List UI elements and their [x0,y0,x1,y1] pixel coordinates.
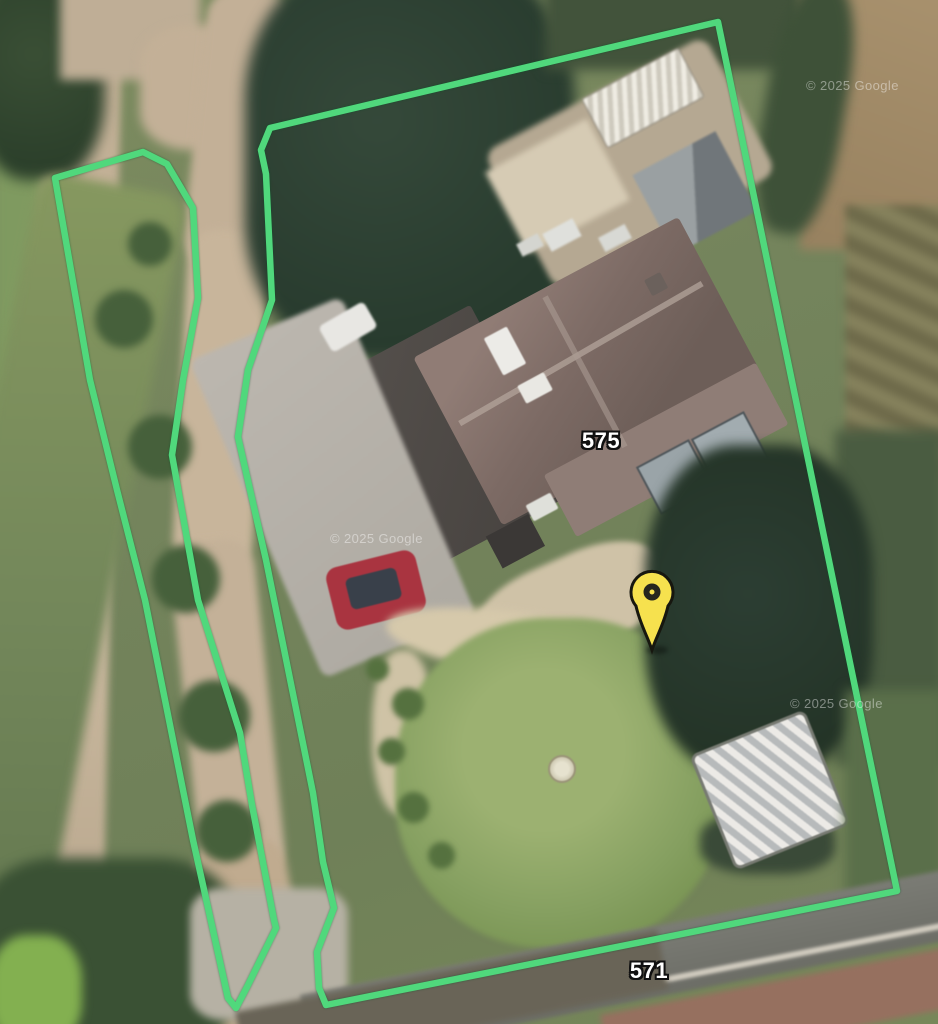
boundary-main-parcel[interactable] [238,22,897,1005]
house-number-label-571: 571 [630,958,668,984]
map-canvas[interactable]: 575 571 © 2025 Google © 2025 Google © 20… [0,0,938,1024]
map-pin-icon[interactable] [631,571,673,650]
house-number-label-575: 575 [582,428,620,454]
boundary-verge-strip[interactable] [55,152,276,1008]
google-watermark: © 2025 Google [330,531,423,546]
google-watermark: © 2025 Google [806,78,899,93]
boundary-overlay [0,0,938,1024]
google-watermark: © 2025 Google [790,696,883,711]
